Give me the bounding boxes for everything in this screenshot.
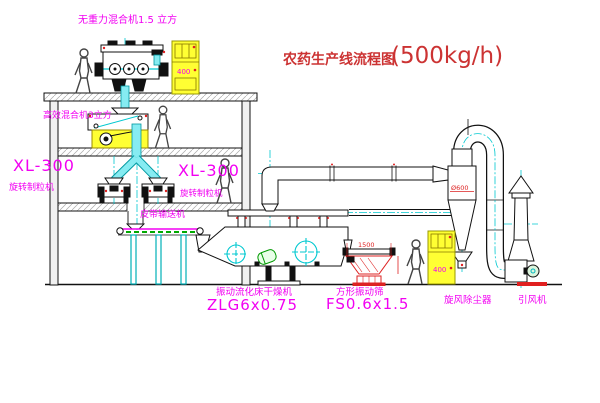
induced-draft-fan [505, 260, 547, 286]
label-granulator-left-model: XL-300 [13, 158, 75, 174]
label-gravity-free-mixer: 无重力混合机1.5 立方 [78, 16, 177, 26]
control-cabinet-right: 400 [428, 231, 455, 284]
label-dryer-model: ZLG6x0.75 [207, 298, 298, 313]
person-figure-floor2 [154, 106, 170, 148]
person-figure-roof [75, 49, 92, 93]
belt-conveyor-machine [117, 228, 210, 284]
sieve-width-dimension: 1500 [358, 241, 375, 249]
label-high-efficiency-mixer: 高效混合机3立方 [43, 112, 112, 121]
control-cabinet-top: 400 [172, 41, 199, 94]
exhaust-stack [508, 176, 534, 261]
label-granulator-left-name: 旋转制粒机 [9, 184, 54, 193]
label-cyclone-name: 旋风除尘器 [444, 296, 492, 306]
label-granulator-right-name: 旋转制粒机 [180, 190, 223, 199]
exhaust-duct-horizontal [262, 164, 433, 212]
label-belt-conveyor: 皮带输送机 [140, 211, 185, 220]
gravity-free-mixer-machine [95, 41, 168, 91]
cabinet-right-value: 400 [433, 266, 446, 274]
diagram-title-capacity: (500kg/h) [391, 45, 503, 68]
person-figure-ground [407, 240, 424, 284]
diagram-title: 农药生产线流程图 [283, 53, 395, 67]
fluid-bed-dryer-machine [198, 210, 352, 285]
cabinet-top-value: 400 [177, 68, 190, 76]
diagram-canvas: 400 [0, 0, 600, 403]
cyclone-diameter-dimension: Ø600 [451, 184, 469, 192]
label-fan-name: 引风机 [518, 296, 547, 306]
square-sieve-machine: 1500 [343, 241, 398, 286]
label-sieve-model: FS0.6x1.5 [326, 297, 409, 312]
label-granulator-right-model: XL-300 [178, 163, 240, 179]
